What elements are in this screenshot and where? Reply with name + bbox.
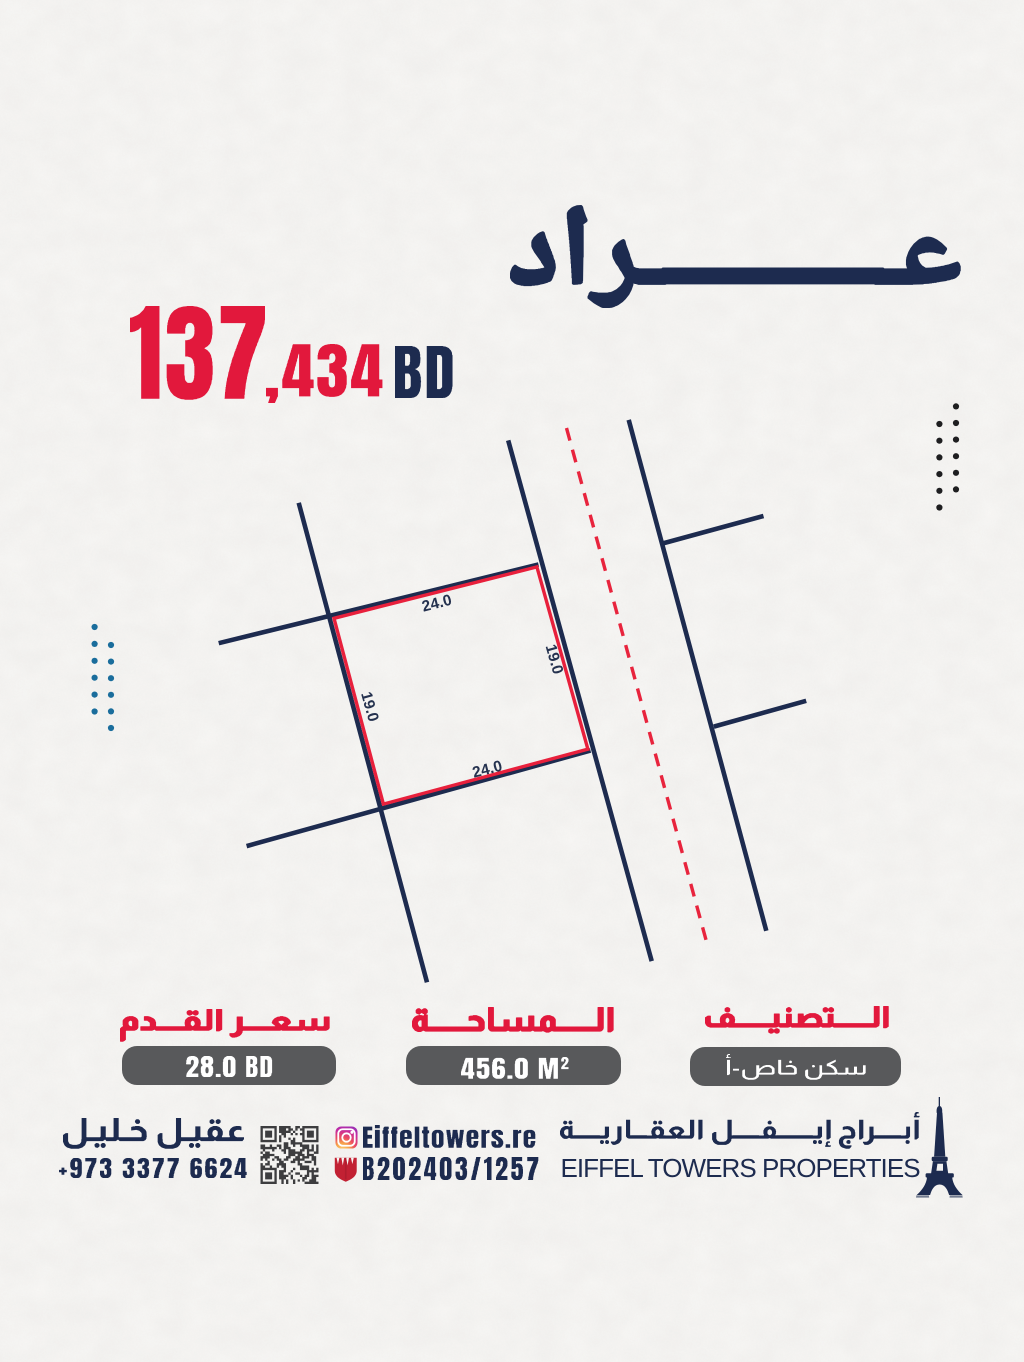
svg-text:19.0: 19.0 — [542, 642, 566, 676]
